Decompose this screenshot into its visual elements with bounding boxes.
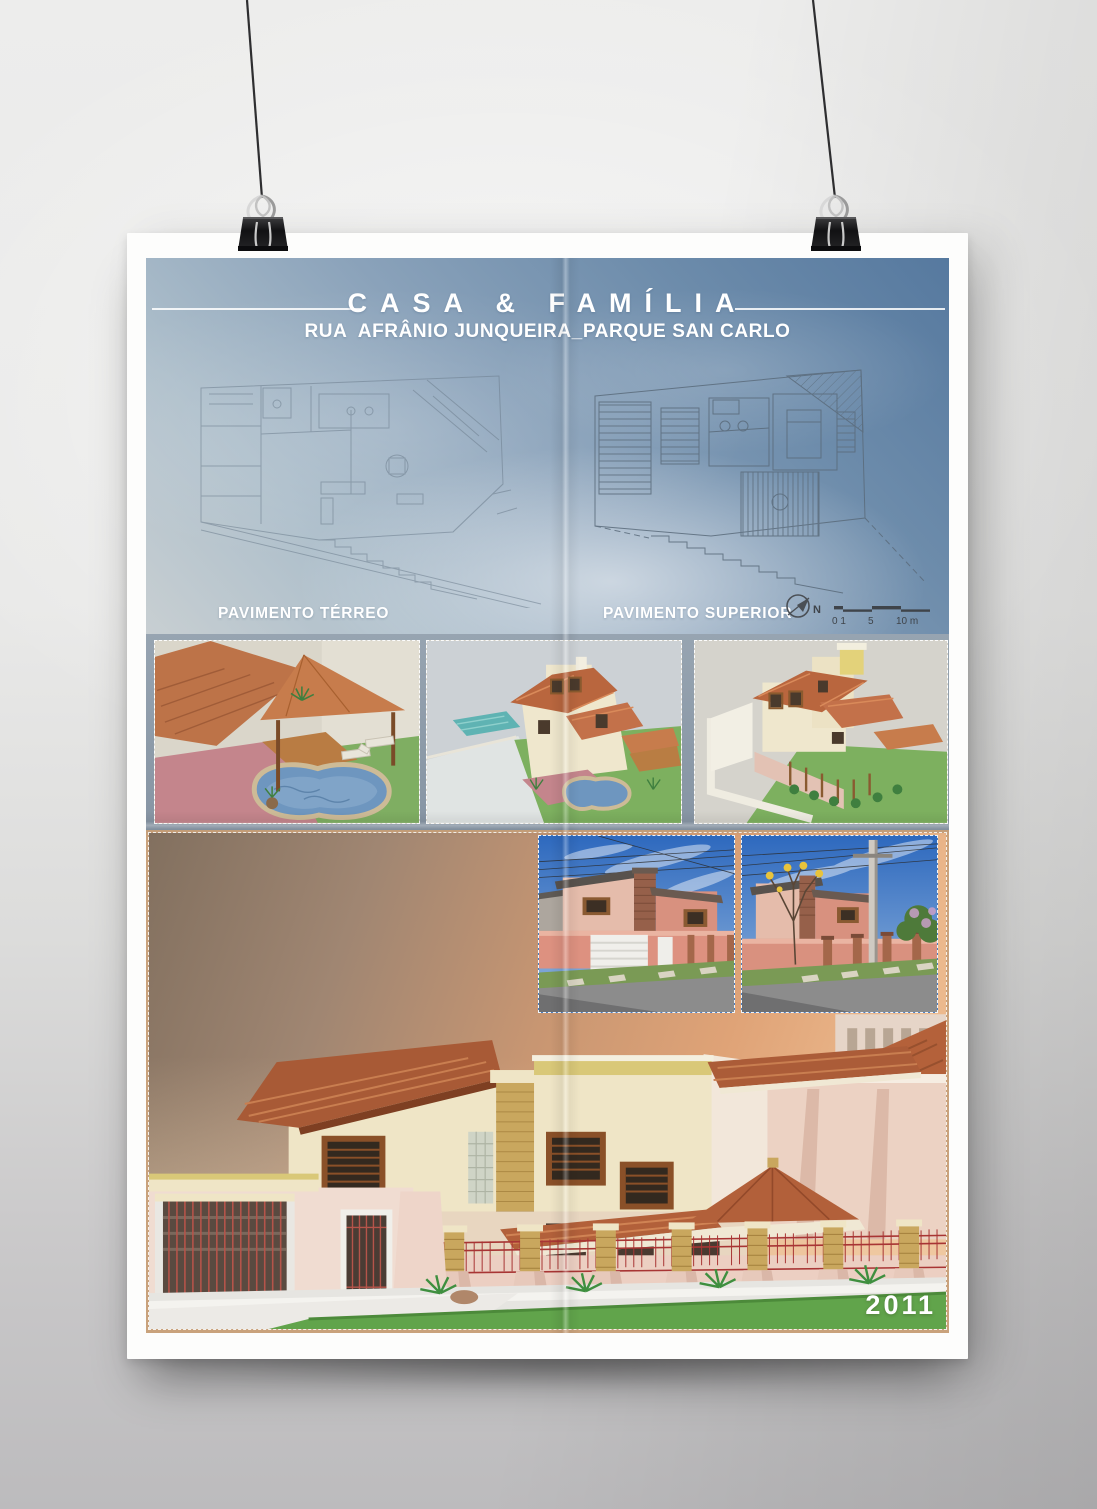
poster-title: CASA & FAMÍLIA <box>146 288 949 319</box>
photo-street-front <box>538 835 735 1013</box>
poster-mockup-scene: { "poster": { "header": { "title": "CASA… <box>0 0 1097 1509</box>
north-label: N <box>813 604 821 616</box>
renders-strip <box>146 634 949 830</box>
scale-label-10m: 10 m <box>896 616 918 627</box>
render-aerial-rear <box>694 640 948 824</box>
photo-street-side <box>741 835 938 1013</box>
north-arrow-icon <box>787 595 809 617</box>
poster: CASA & FAMÍLIA RUA AFRÂNIO JUNQUEIRA_PAR… <box>127 233 968 1359</box>
scale-bar-icon <box>834 606 930 612</box>
render-patio-pool <box>154 640 420 824</box>
window-shuttered <box>546 1132 606 1186</box>
scale-label-5: 5 <box>868 616 874 627</box>
scale-label-0-1: 0 1 <box>832 616 846 627</box>
window-shuttered <box>322 1136 386 1194</box>
north-arrow-and-scale: N 0 1 5 10 m <box>782 590 946 630</box>
poster-subtitle: RUA AFRÂNIO JUNQUEIRA_PARQUE SAN CARLO <box>146 321 949 343</box>
plan-label-terreo: PAVIMENTO TÉRREO <box>218 605 389 623</box>
sky-section: CASA & FAMÍLIA RUA AFRÂNIO JUNQUEIRA_PAR… <box>146 258 949 634</box>
plan-terreo <box>201 376 541 608</box>
main-render-section: 2011 <box>146 830 949 1333</box>
poster-content: CASA & FAMÍLIA RUA AFRÂNIO JUNQUEIRA_PAR… <box>146 258 949 1333</box>
window-shuttered <box>620 1162 674 1210</box>
year-label: 2011 <box>865 1290 936 1321</box>
floor-plans-drawing <box>146 362 949 608</box>
plan-superior <box>595 370 925 593</box>
main-render-panel: 2011 <box>148 832 947 1330</box>
plan-label-superior: PAVIMENTO SUPERIOR <box>603 605 792 623</box>
hanging-string-left <box>247 0 262 198</box>
title-block: CASA & FAMÍLIA RUA AFRÂNIO JUNQUEIRA_PAR… <box>146 288 949 343</box>
render-aerial-front <box>426 640 682 824</box>
hanging-string-right <box>813 0 835 198</box>
